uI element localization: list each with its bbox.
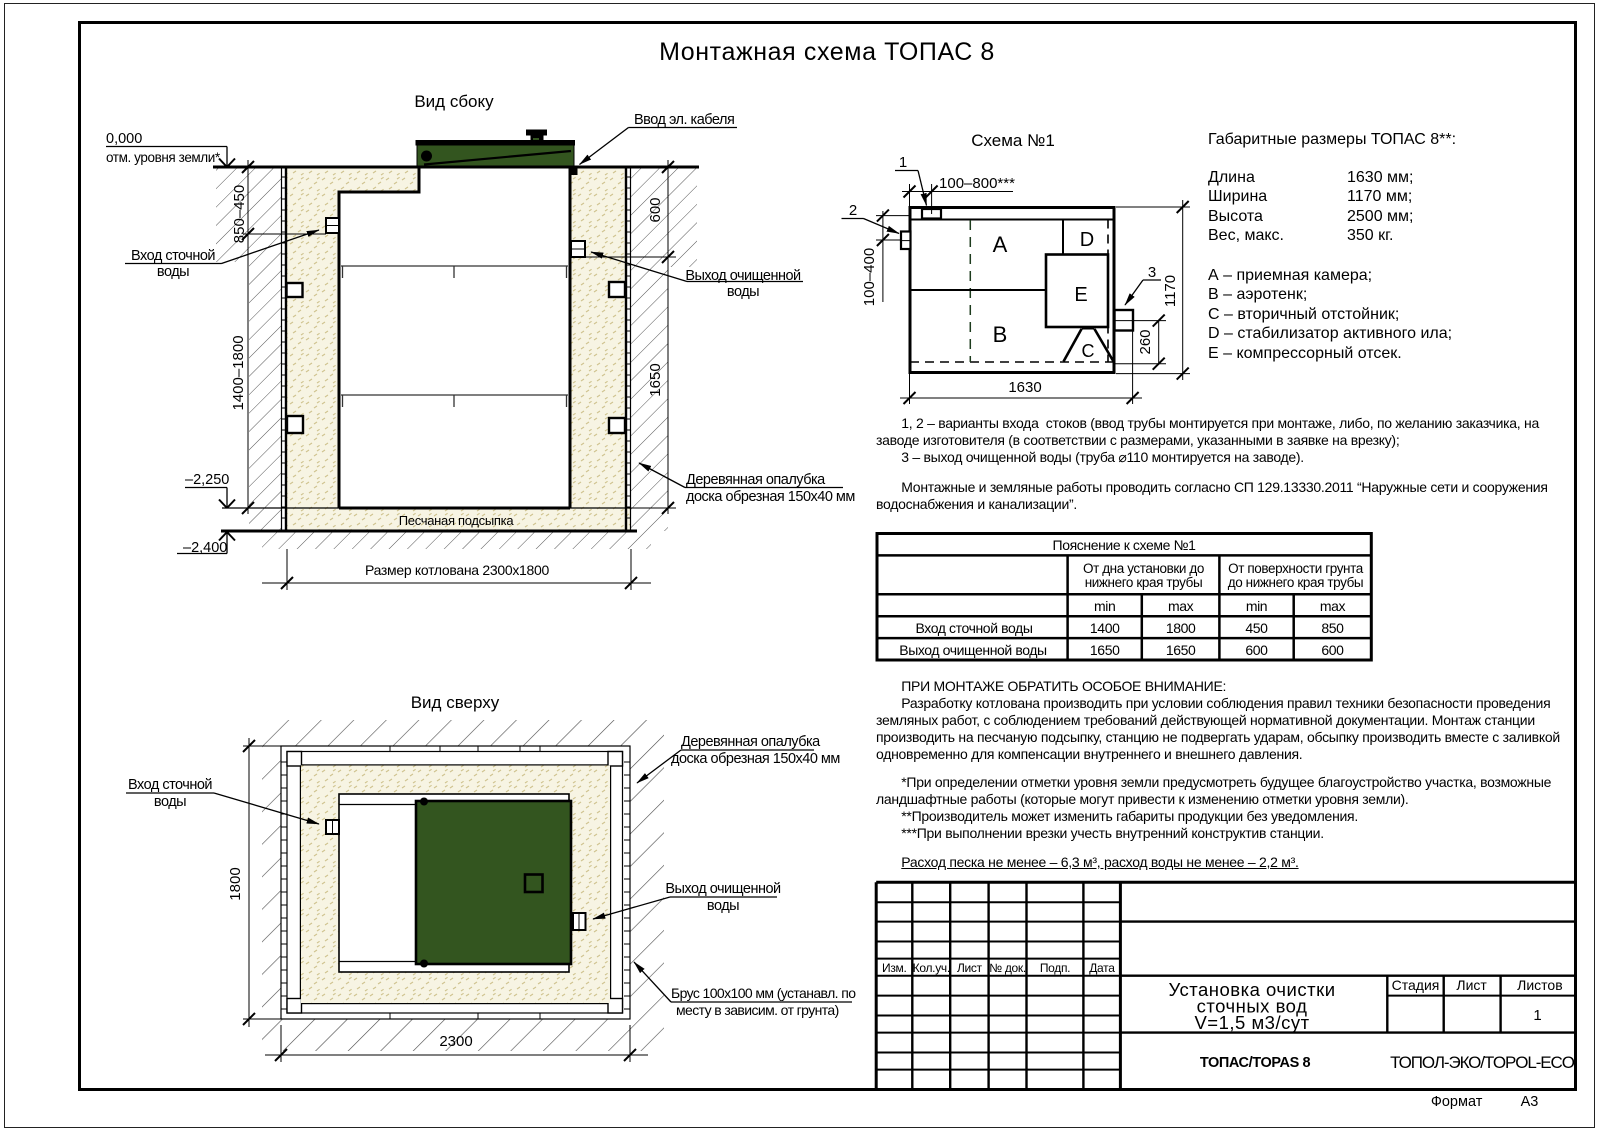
svg-text:1: 1 xyxy=(899,154,907,171)
svg-text:Стадия: Стадия xyxy=(1392,977,1440,993)
svg-text:воды: воды xyxy=(157,264,189,280)
svg-text:600: 600 xyxy=(647,197,664,222)
svg-text:отм. уровня земли*: отм. уровня земли* xyxy=(106,150,221,165)
svg-text:№ док.: № док. xyxy=(989,961,1026,975)
svg-text:600: 600 xyxy=(1321,642,1344,658)
svg-text:2: 2 xyxy=(849,202,857,219)
svg-text:воды: воды xyxy=(154,794,186,810)
svg-text:min: min xyxy=(1246,598,1267,614)
svg-text:до нижнего края трубы: до нижнего края трубы xyxy=(1228,575,1363,590)
svg-text:Вид сверху: Вид сверху xyxy=(411,693,500,712)
svg-text:Песчаная подсыпка: Песчаная подсыпка xyxy=(399,513,515,528)
svg-text:1400–1800: 1400–1800 xyxy=(230,335,247,410)
svg-text:С: С xyxy=(1082,341,1095,361)
svg-text:А3: А3 xyxy=(1521,1094,1539,1110)
svg-text:Выход очищенной воды: Выход очищенной воды xyxy=(899,642,1047,658)
svg-text:Размер котлована 2300х1800: Размер котлована 2300х1800 xyxy=(365,562,549,578)
svg-text:V=1,5 м3/сут: V=1,5 м3/сут xyxy=(1194,1012,1309,1033)
svg-text:Выход очищенной: Выход очищенной xyxy=(665,881,781,897)
svg-text:Ввод эл. кабеля: Ввод эл. кабеля xyxy=(634,112,734,128)
svg-text:От дна установки до: От дна установки до xyxy=(1083,561,1204,576)
svg-text:600: 600 xyxy=(1245,642,1268,658)
svg-text:max: max xyxy=(1320,598,1346,614)
svg-text:Деревянная опалубка: Деревянная опалубка xyxy=(681,734,821,750)
svg-text:Формат: Формат xyxy=(1431,1094,1483,1110)
svg-text:От поверхности грунта: От поверхности грунта xyxy=(1228,561,1364,576)
svg-text:1650: 1650 xyxy=(647,363,664,396)
svg-text:Пояснение к схеме №1: Пояснение к схеме №1 xyxy=(1053,537,1197,553)
svg-text:1400: 1400 xyxy=(1090,620,1120,636)
svg-text:доска обрезная 150х40 мм: доска обрезная 150х40 мм xyxy=(686,489,855,505)
svg-text:Подп.: Подп. xyxy=(1040,961,1070,975)
svg-text:2300: 2300 xyxy=(439,1033,472,1050)
svg-text:Деревянная опалубка: Деревянная опалубка xyxy=(686,472,826,488)
svg-text:850–450: 850–450 xyxy=(231,185,248,243)
svg-text:В: В xyxy=(993,322,1008,347)
svg-text:Дата: Дата xyxy=(1089,961,1115,975)
svg-text:Изм.: Изм. xyxy=(882,961,907,975)
svg-text:3: 3 xyxy=(1148,264,1156,281)
svg-text:min: min xyxy=(1094,598,1115,614)
svg-text:А: А xyxy=(993,232,1008,257)
svg-text:1650: 1650 xyxy=(1166,642,1196,658)
svg-text:Вход сточной: Вход сточной xyxy=(128,777,212,793)
svg-text:260: 260 xyxy=(1137,329,1154,354)
svg-text:Листов: Листов xyxy=(1517,977,1563,993)
svg-text:Кол.уч.: Кол.уч. xyxy=(913,961,950,975)
svg-text:100–800***: 100–800*** xyxy=(939,175,1015,192)
svg-text:1800: 1800 xyxy=(1166,620,1196,636)
svg-text:Е: Е xyxy=(1074,284,1087,306)
svg-text:Схема №1: Схема №1 xyxy=(971,131,1055,150)
svg-text:ТОПОЛ-ЭКО/TOPOL-ECO: ТОПОЛ-ЭКО/TOPOL-ECO xyxy=(1390,1053,1575,1072)
svg-text:1630: 1630 xyxy=(1008,379,1041,396)
svg-text:Лист: Лист xyxy=(957,961,983,975)
svg-text:850: 850 xyxy=(1321,620,1344,636)
svg-text:Вход сточной: Вход сточной xyxy=(131,248,215,264)
svg-text:–2,250: –2,250 xyxy=(185,472,229,488)
svg-text:Лист: Лист xyxy=(1456,977,1487,993)
svg-text:месту в зависим. от грунта): месту в зависим. от грунта) xyxy=(676,1002,839,1018)
svg-text:1: 1 xyxy=(1533,1007,1541,1024)
svg-text:max: max xyxy=(1168,598,1194,614)
svg-text:воды: воды xyxy=(727,284,759,300)
svg-text:ТОПАС/TOPAS 8: ТОПАС/TOPAS 8 xyxy=(1200,1055,1311,1071)
svg-text:0,000: 0,000 xyxy=(106,131,142,147)
svg-text:100–400: 100–400 xyxy=(861,248,878,306)
svg-text:450: 450 xyxy=(1245,620,1268,636)
svg-text:D: D xyxy=(1080,229,1094,251)
svg-text:Вход сточной воды: Вход сточной воды xyxy=(915,620,1032,636)
svg-text:1800: 1800 xyxy=(227,867,244,900)
svg-text:воды: воды xyxy=(707,898,739,914)
svg-text:Вид сбоку: Вид сбоку xyxy=(414,92,494,111)
svg-text:1170: 1170 xyxy=(1162,275,1179,307)
svg-text:1650: 1650 xyxy=(1090,642,1120,658)
svg-text:нижнего края трубы: нижнего края трубы xyxy=(1085,575,1203,590)
svg-text:Брус 100х100 мм (устанавл. по: Брус 100х100 мм (устанавл. по xyxy=(671,985,856,1001)
svg-text:доска обрезная 150х40 мм: доска обрезная 150х40 мм xyxy=(671,751,840,767)
